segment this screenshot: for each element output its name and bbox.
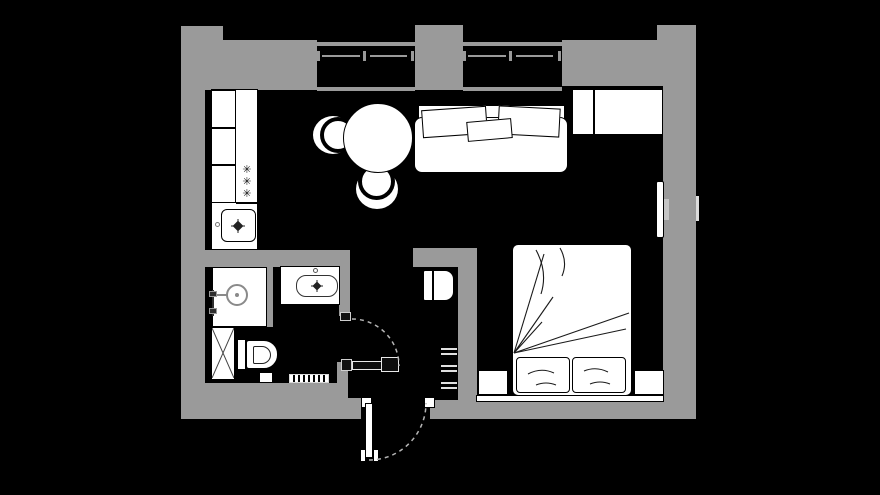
wall-left — [181, 26, 205, 419]
bath-mat — [289, 374, 329, 383]
wall-shower-divider — [267, 267, 273, 327]
wall-hall-left-upper — [339, 267, 350, 316]
kitchen-sink-knob — [215, 222, 220, 227]
wall-hall-right — [458, 267, 477, 400]
washing-machine — [211, 327, 235, 380]
wall-right — [663, 86, 696, 419]
window-1-sill — [317, 87, 415, 91]
stove-burners: ✳ ✳ ✳ — [239, 164, 255, 200]
wall-window-pier — [415, 25, 463, 90]
window-2-outer-frame — [463, 42, 562, 46]
hall-radiator-fin — [441, 365, 457, 372]
wardrobe-divider — [593, 90, 595, 134]
kitchen-cabinet-3 — [211, 165, 236, 203]
kitchen-sink — [221, 209, 256, 242]
entry-door-closer-tick — [360, 449, 366, 462]
wall-tv — [656, 181, 664, 238]
window-mullion-tick — [558, 51, 561, 61]
hall-cabinet — [423, 270, 454, 301]
sofa-pillow-3 — [466, 118, 513, 142]
window-2-glass-dash — [468, 55, 506, 57]
faucet-icon — [231, 219, 245, 233]
kitchen-worktop-line — [236, 202, 258, 204]
window-1-glass-dash — [370, 55, 407, 57]
bathroom-door-jamb-bottom — [341, 359, 352, 371]
hall-radiator-fin — [441, 382, 457, 389]
wall-bottom-right — [430, 400, 694, 419]
dining-table — [343, 103, 413, 173]
window-mullion-tick — [509, 51, 512, 61]
wall-top-right — [562, 40, 657, 86]
shower-mixer-knob — [209, 291, 217, 297]
bed-pillow-right — [572, 357, 626, 393]
nightstand-right — [634, 370, 664, 395]
window-2-glass-dash — [516, 55, 553, 57]
window-1-glass-dash — [322, 55, 360, 57]
wall-bathroom-top — [205, 250, 350, 267]
hall-cabinet-divider — [432, 271, 434, 300]
exterior-vent-tick — [696, 196, 699, 221]
burner-icon: ✳ — [242, 176, 251, 187]
window-mullion-tick — [317, 51, 320, 61]
floor-plan: ✳ ✳ ✳ — [0, 0, 880, 495]
entry-door-closer-tick — [373, 449, 379, 462]
faucet-icon — [311, 280, 323, 292]
wardrobe — [572, 89, 663, 135]
washbasin-overflow — [313, 268, 318, 273]
bed-pillow-left — [516, 357, 570, 393]
bathroom-door-leaf-end — [381, 357, 399, 372]
wall-bottom-left — [181, 383, 348, 419]
kitchen-cabinet-2 — [211, 128, 236, 165]
wall-top-kitchen — [223, 40, 317, 90]
shower-mixer-knob — [209, 308, 217, 314]
wall-hall-top — [413, 248, 477, 267]
wall-bottom-left-step — [348, 398, 361, 419]
trash-bin — [259, 372, 273, 383]
bathroom-door-jamb-top — [340, 312, 351, 321]
entry-door-leaf — [365, 403, 373, 458]
bed-bench — [476, 395, 664, 402]
hall-radiator-fin — [441, 348, 457, 355]
window-1-outer-frame — [317, 42, 415, 46]
entry-door-jamb-right — [424, 397, 435, 408]
window-mullion-tick — [411, 51, 414, 61]
toilet-tank — [237, 339, 246, 370]
nightstand-left — [478, 370, 508, 395]
wall-top-left-corner — [205, 26, 223, 90]
shower-drain-dot — [235, 293, 239, 297]
burner-icon: ✳ — [242, 188, 251, 199]
window-2-sill — [463, 87, 562, 91]
kitchen-cabinet-1 — [211, 90, 236, 128]
window-mullion-tick — [463, 51, 466, 61]
toilet-inner — [253, 346, 271, 364]
wall-top-right-corner — [657, 25, 696, 86]
burner-icon: ✳ — [242, 164, 251, 175]
x-mark-icon — [212, 328, 234, 378]
window-mullion-tick — [363, 51, 366, 61]
